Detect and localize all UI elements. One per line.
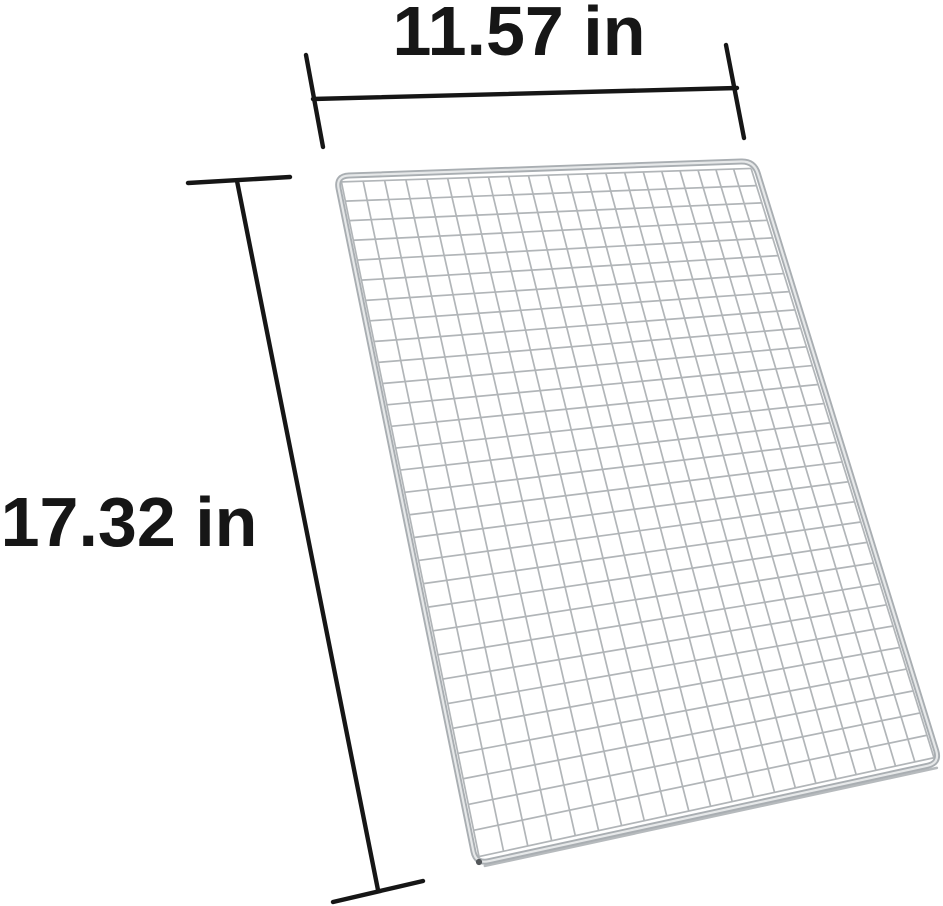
mesh-wire-horizontal [458, 669, 906, 753]
height-dimension-label: 17.32 in [1, 483, 258, 561]
width-dimension-label: 11.57 in [393, 0, 646, 70]
mesh-wire-vertical [468, 178, 621, 826]
frame-highlight [338, 161, 937, 861]
product-dimension-diagram: 11.57 in 17.32 in [0, 0, 943, 906]
mesh-wire-vertical [528, 176, 688, 811]
mesh-wire-horizontal [448, 626, 893, 704]
mesh-wire-vertical [448, 178, 599, 830]
mesh-wire-vertical [509, 176, 667, 815]
mesh-wire-horizontal [479, 758, 934, 857]
frame-corner-rivet [476, 859, 482, 865]
mesh-wire-vertical [363, 181, 503, 851]
mesh-wire-horizontal [443, 605, 887, 679]
height-dimension-tick-1 [188, 177, 290, 183]
frame-bottom-edge-shadow [485, 768, 937, 866]
width-dimension-line [313, 88, 737, 99]
mesh-wire-vertical [548, 175, 711, 806]
mesh-wire-horizontal [453, 647, 900, 728]
frame-outline [338, 161, 937, 861]
mesh-wire-vertical [606, 173, 775, 792]
diagram-canvas: 11.57 in 17.32 in [0, 0, 943, 906]
mesh-wire-vertical [568, 174, 733, 801]
mesh-wire-vertical [406, 180, 552, 841]
mesh-wire-vertical [489, 177, 645, 821]
mesh-wire-horizontal [463, 691, 913, 779]
wire-mesh-grate [341, 168, 934, 856]
grate-frame [338, 161, 937, 865]
width-dimension-tick-2 [726, 45, 744, 138]
